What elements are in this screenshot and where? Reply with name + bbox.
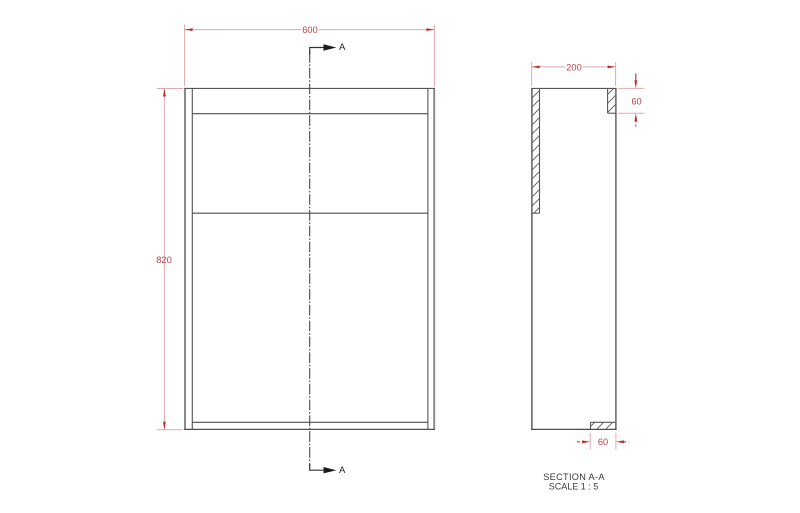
svg-text:A: A — [339, 42, 346, 53]
svg-text:A: A — [339, 465, 346, 476]
svg-text:60: 60 — [631, 97, 641, 107]
svg-text:600: 600 — [302, 25, 318, 35]
svg-text:SCALE 1 : 5: SCALE 1 : 5 — [549, 481, 599, 491]
svg-text:60: 60 — [598, 437, 608, 447]
svg-text:200: 200 — [566, 62, 582, 72]
svg-text:820: 820 — [156, 255, 172, 265]
